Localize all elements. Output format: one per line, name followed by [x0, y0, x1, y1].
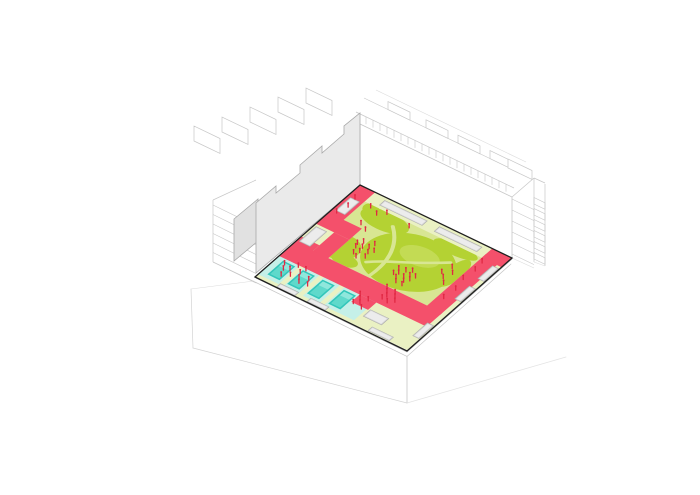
person-head: [298, 274, 300, 276]
diagram-canvas: [0, 0, 700, 495]
person-head: [393, 270, 395, 272]
person-head: [359, 291, 361, 293]
person-body: [298, 280, 299, 284]
person-head: [386, 283, 388, 285]
person-head: [354, 194, 356, 196]
person-head: [368, 244, 370, 246]
person-head: [305, 266, 307, 268]
stepped-rooftop-box: [306, 88, 332, 116]
person-head: [481, 258, 483, 260]
person-body: [415, 274, 416, 278]
person-head: [347, 202, 349, 204]
person-body: [443, 275, 444, 279]
person-body: [361, 305, 362, 309]
person-body: [387, 299, 388, 303]
wing-roof-link: [512, 178, 534, 197]
person-body: [281, 273, 282, 277]
person-head: [359, 248, 361, 250]
person-head: [451, 264, 453, 266]
person-body: [386, 293, 387, 297]
person-head: [395, 274, 397, 276]
person-head: [381, 294, 383, 296]
person-head: [374, 241, 376, 243]
person-body: [368, 297, 369, 301]
wing-balcony-box: [534, 220, 545, 232]
person-head: [289, 271, 291, 273]
person-body: [395, 279, 396, 283]
ground-left-edge: [191, 289, 193, 348]
person-head: [307, 281, 309, 283]
person-head: [370, 203, 372, 205]
stepped-rooftop-box: [250, 107, 276, 135]
wing-rooftop-box: [508, 159, 532, 180]
person-head: [297, 262, 299, 264]
person-body: [403, 279, 404, 283]
person-body: [368, 245, 369, 249]
person-body: [360, 221, 361, 225]
person-head: [376, 210, 378, 212]
person-head: [336, 208, 338, 210]
person-body: [354, 195, 355, 199]
person-head: [452, 269, 454, 271]
person-head: [398, 265, 400, 267]
person-head: [367, 296, 369, 298]
wing-balcony-box: [534, 198, 545, 210]
wing-floor-line: [512, 243, 534, 254]
plinth-left-edge: [193, 348, 407, 403]
person-head: [280, 271, 282, 273]
person-head: [359, 299, 361, 301]
person-body: [355, 244, 356, 248]
person-head: [356, 239, 358, 241]
person-head: [403, 273, 405, 275]
person-head: [409, 276, 411, 278]
person-head: [364, 253, 366, 255]
stepped-rooftop-box: [222, 117, 248, 145]
wing-balcony-box: [534, 242, 545, 254]
person-body: [374, 242, 375, 246]
person-head: [360, 304, 362, 306]
wing-floor-line: [512, 199, 534, 210]
person-head: [474, 266, 476, 268]
person-head: [395, 278, 397, 280]
person-body: [382, 295, 383, 299]
person-head: [355, 243, 357, 245]
person-body: [376, 212, 377, 216]
person-head: [394, 297, 396, 299]
person-body: [441, 270, 442, 274]
person-body: [455, 287, 456, 291]
wing-base-line-2: [534, 262, 545, 266]
wing-balcony-box: [534, 231, 545, 243]
person-head: [353, 249, 355, 251]
person-body: [405, 268, 406, 272]
person-head: [373, 247, 375, 249]
person-body: [393, 271, 394, 275]
person-body: [475, 267, 476, 271]
facade-floor-line: [213, 262, 256, 283]
person-body: [408, 224, 409, 228]
person-body: [443, 281, 444, 285]
person-body: [370, 204, 371, 208]
person-head: [363, 238, 365, 240]
person-body: [373, 249, 374, 253]
wing-roof-edge: [534, 178, 545, 183]
person-head: [299, 269, 301, 271]
person-head: [365, 226, 367, 228]
person-body: [347, 204, 348, 208]
person-head: [405, 267, 407, 269]
person-body: [452, 265, 453, 269]
person-head: [386, 209, 388, 211]
person-body: [398, 271, 399, 275]
person-body: [359, 300, 360, 304]
person-body: [290, 273, 291, 277]
east-wing-building: [508, 159, 545, 268]
person-body: [336, 209, 337, 213]
person-head: [386, 298, 388, 300]
person-body: [300, 270, 301, 274]
person-head: [360, 220, 362, 222]
person-head: [394, 289, 396, 291]
person-body: [353, 250, 354, 254]
wing-balcony-box: [534, 209, 545, 221]
person-body: [298, 264, 299, 268]
person-body: [353, 300, 354, 304]
wing-floor-line: [512, 210, 534, 221]
person-head: [455, 285, 457, 287]
person-body: [355, 254, 356, 258]
person-body: [305, 267, 306, 271]
person-head: [394, 293, 396, 295]
person-head: [409, 272, 411, 274]
person-head: [352, 299, 354, 301]
person-head: [443, 279, 445, 281]
person-body: [463, 276, 464, 280]
person-head: [284, 260, 286, 262]
person-head: [359, 295, 361, 297]
person-head: [355, 253, 357, 255]
person-body: [365, 228, 366, 232]
person-body: [308, 277, 309, 281]
ground-left-link: [191, 281, 254, 289]
person-head: [401, 281, 403, 283]
person-body: [443, 295, 444, 299]
lower-wing-roofline: [213, 180, 256, 200]
person-body: [359, 249, 360, 253]
person-body: [386, 211, 387, 215]
person-body: [289, 267, 290, 271]
person-body: [284, 261, 285, 265]
rooftop-box: [388, 102, 410, 121]
person-head: [386, 292, 388, 294]
person-body: [362, 245, 363, 249]
person-head: [289, 265, 291, 267]
person-body: [452, 271, 453, 275]
person-head: [398, 269, 400, 271]
person-head: [462, 274, 464, 276]
stepped-rooftop-box: [194, 126, 220, 154]
person-head: [441, 268, 443, 270]
person-body: [401, 282, 402, 286]
person-head: [386, 288, 388, 290]
person-body: [307, 282, 308, 286]
person-head: [408, 223, 410, 225]
person-head: [361, 243, 363, 245]
person-head: [298, 278, 300, 280]
person-body: [481, 259, 482, 263]
person-body: [363, 240, 364, 244]
wing-floor-line: [512, 221, 534, 232]
person-head: [412, 267, 414, 269]
person-body: [283, 266, 284, 270]
wing-floor-line: [512, 232, 534, 243]
person-head: [367, 249, 369, 251]
person-head: [308, 276, 310, 278]
person-head: [442, 273, 444, 275]
person-body: [367, 250, 368, 254]
rooftop-box: [426, 120, 448, 139]
person-head: [443, 294, 445, 296]
axonometric-diagram: [0, 0, 700, 495]
stepped-rooftop-boxes: [194, 88, 332, 154]
stepped-rooftop-box: [278, 97, 304, 125]
person-body: [409, 277, 410, 281]
person-body: [357, 241, 358, 245]
person-body: [394, 299, 395, 303]
person-body: [412, 269, 413, 273]
person-head: [403, 277, 405, 279]
cut-wall-side-panel: [234, 199, 258, 261]
wing-floor-lines: [512, 198, 545, 265]
plinth-right-edge: [407, 357, 566, 403]
person-head: [415, 273, 417, 275]
person-head: [282, 265, 284, 267]
person-body: [365, 255, 366, 259]
